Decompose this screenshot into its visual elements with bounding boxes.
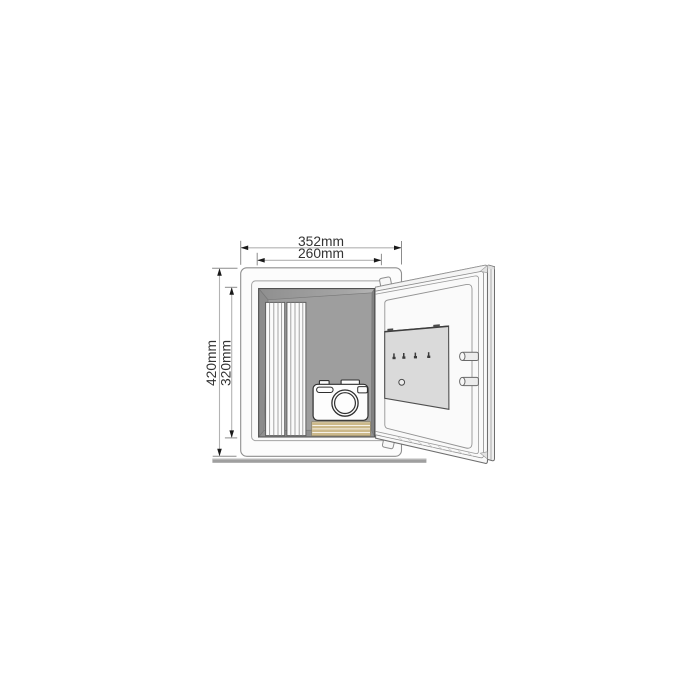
svg-text:320mm: 320mm	[218, 340, 233, 386]
svg-text:420mm: 420mm	[204, 340, 219, 386]
svg-text:260mm: 260mm	[298, 246, 344, 261]
